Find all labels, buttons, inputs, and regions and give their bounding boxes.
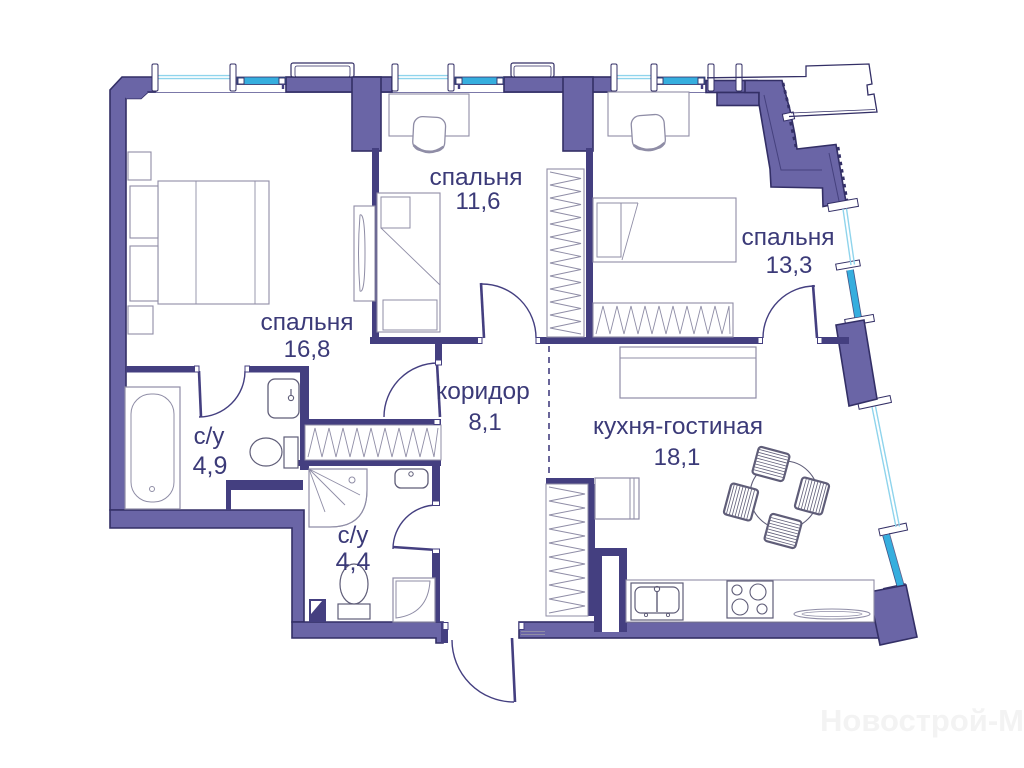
svg-text:с/у: с/у: [194, 423, 225, 450]
svg-text:16,8: 16,8: [284, 336, 331, 363]
svg-text:13,3: 13,3: [766, 252, 813, 279]
svg-text:4,9: 4,9: [193, 452, 228, 480]
svg-text:18,1: 18,1: [654, 444, 701, 471]
svg-text:коридор: коридор: [436, 378, 529, 405]
svg-text:с/у: с/у: [338, 522, 369, 549]
svg-text:кухня-гостиная: кухня-гостиная: [593, 413, 763, 440]
svg-text:спальня: спальня: [261, 309, 354, 336]
svg-text:11,6: 11,6: [456, 188, 501, 215]
svg-text:спальня: спальня: [430, 164, 523, 191]
svg-text:8,1: 8,1: [468, 409, 501, 436]
svg-text:Новострой-М: Новострой-М: [820, 703, 1024, 738]
svg-text:спальня: спальня: [742, 224, 835, 251]
svg-text:4,4: 4,4: [336, 548, 371, 576]
